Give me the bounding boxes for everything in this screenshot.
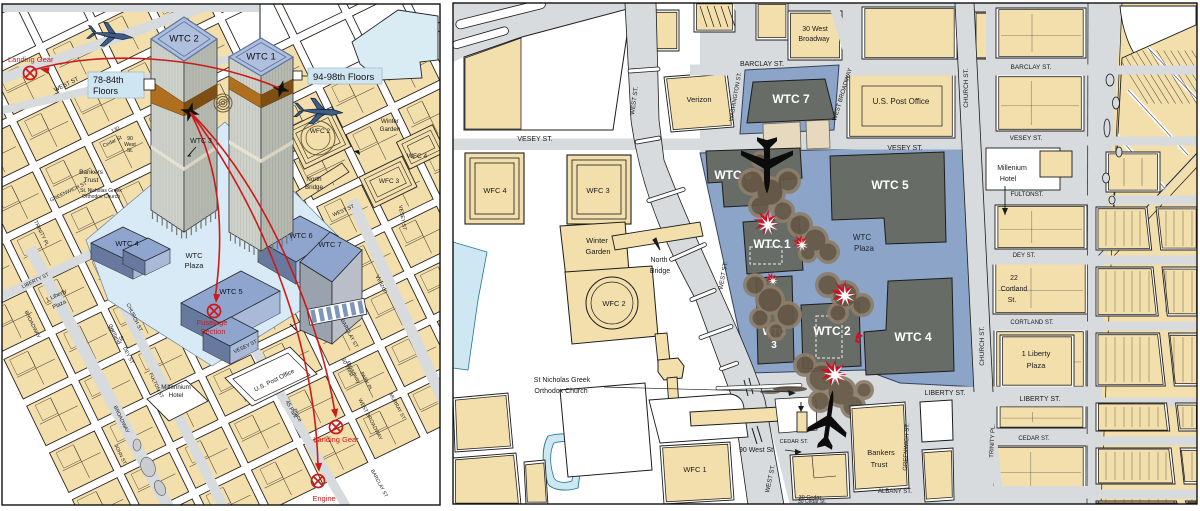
svg-text:Garden: Garden — [380, 126, 401, 133]
svg-text:Verizon: Verizon — [686, 95, 711, 104]
svg-text:WTC: WTC — [185, 251, 203, 260]
svg-text:Millenium: Millenium — [997, 165, 1027, 172]
svg-text:Landing Gear: Landing Gear — [313, 435, 359, 444]
svg-text:Hotel: Hotel — [169, 392, 183, 399]
svg-text:Engine: Engine — [312, 494, 335, 503]
svg-text:CEDAR ST.: CEDAR ST. — [1018, 436, 1050, 442]
svg-text:WFC 4: WFC 4 — [407, 153, 428, 160]
svg-text:Floors: Floors — [93, 86, 119, 96]
svg-text:WTC 3: WTC 3 — [190, 138, 212, 145]
svg-text:FULTONST.: FULTONST. — [1010, 191, 1043, 198]
svg-text:WFC 2: WFC 2 — [602, 299, 625, 308]
svg-text:BARCLAY ST.: BARCLAY ST. — [740, 61, 784, 68]
svg-text:Garden: Garden — [585, 247, 610, 256]
svg-text:CEDAR ST.: CEDAR ST. — [780, 439, 809, 445]
svg-text:U.S. Post Office: U.S. Post Office — [873, 97, 930, 106]
svg-text:WTC 2: WTC 2 — [169, 34, 199, 45]
svg-text:WTC: WTC — [853, 233, 871, 242]
svg-text:Fuselage: Fuselage — [197, 318, 228, 327]
svg-text:St.: St. — [1008, 297, 1017, 304]
svg-text:Winter: Winter — [381, 118, 399, 125]
svg-text:3: 3 — [771, 340, 777, 351]
svg-text:ALBANY ST.: ALBANY ST. — [878, 489, 912, 495]
svg-text:St Nicholas Greek: St Nicholas Greek — [534, 377, 591, 384]
svg-text:WTC 7: WTC 7 — [318, 240, 341, 249]
svg-text:CHURCH ST.: CHURCH ST. — [979, 326, 986, 366]
svg-text:Plaza: Plaza — [185, 261, 205, 270]
svg-text:North: North — [306, 176, 322, 183]
svg-text:Millennium: Millennium — [161, 384, 191, 391]
svg-text:Orthodox Church: Orthodox Church — [82, 194, 120, 200]
svg-text:LIBERTY ST.: LIBERTY ST. — [925, 390, 966, 397]
svg-text:BARCLAY ST.: BARCLAY ST. — [1011, 64, 1052, 71]
svg-text:Bridge: Bridge — [650, 268, 670, 275]
svg-text:30 West: 30 West — [802, 26, 828, 33]
svg-text:WTC 7: WTC 7 — [772, 92, 810, 106]
svg-text:WTC 4: WTC 4 — [115, 239, 138, 248]
svg-text:LIBERTY ST.: LIBERTY ST. — [1020, 396, 1061, 403]
svg-text:WFC 3: WFC 3 — [586, 186, 609, 195]
svg-text:Bankers: Bankers — [79, 169, 104, 176]
svg-text:22: 22 — [1010, 275, 1018, 282]
svg-text:CHURCH ST.: CHURCH ST. — [963, 68, 970, 108]
svg-text:North: North — [650, 257, 667, 264]
svg-text:WTC 1: WTC 1 — [246, 52, 276, 63]
svg-text:Bridge: Bridge — [305, 184, 323, 191]
svg-text:Broadway: Broadway — [798, 36, 830, 43]
svg-text:Orthodox Church: Orthodox Church — [534, 388, 587, 395]
svg-text:WTC 5: WTC 5 — [219, 287, 242, 296]
svg-text:WTC 1: WTC 1 — [753, 237, 791, 251]
svg-text:CORTLAND ST.: CORTLAND ST. — [1010, 320, 1054, 326]
svg-text:Section: Section — [200, 327, 225, 336]
svg-text:1 Liberty: 1 Liberty — [1022, 349, 1051, 358]
svg-text:Cortland: Cortland — [1001, 286, 1028, 293]
svg-text:VESEY ST.: VESEY ST. — [887, 145, 922, 152]
svg-text:Landing Gear: Landing Gear — [8, 55, 54, 64]
svg-text:Trust: Trust — [871, 460, 889, 469]
svg-text:St.: St. — [127, 148, 133, 154]
svg-text:WFC 1: WFC 1 — [683, 465, 706, 474]
svg-text:90 West St.: 90 West St. — [739, 447, 775, 454]
svg-text:WFC 3: WFC 3 — [379, 178, 400, 185]
svg-text:Winter: Winter — [586, 236, 608, 245]
svg-text:WTC 2: WTC 2 — [813, 324, 851, 338]
svg-text:Hotel: Hotel — [1000, 176, 1017, 183]
svg-text:VESEY ST.: VESEY ST. — [517, 136, 552, 143]
svg-text:DEY ST.: DEY ST. — [1013, 253, 1036, 259]
svg-text:WTC 6: WTC 6 — [289, 231, 312, 240]
svg-text:78-84th: 78-84th — [93, 75, 124, 85]
svg-text:VESEY ST.: VESEY ST. — [1010, 135, 1043, 142]
svg-text:94-98th Floors: 94-98th Floors — [313, 72, 375, 83]
svg-text:Plaza: Plaza — [1027, 361, 1047, 370]
svg-text:WTC 5: WTC 5 — [871, 178, 909, 192]
svg-text:WFC 2: WFC 2 — [310, 128, 331, 135]
svg-text:Plaza: Plaza — [854, 244, 875, 253]
svg-text:Bankers: Bankers — [867, 448, 895, 457]
svg-text:WTC 4: WTC 4 — [894, 330, 932, 344]
svg-text:WFC 4: WFC 4 — [483, 186, 506, 195]
svg-text:30 Cedar: 30 Cedar — [799, 495, 822, 501]
